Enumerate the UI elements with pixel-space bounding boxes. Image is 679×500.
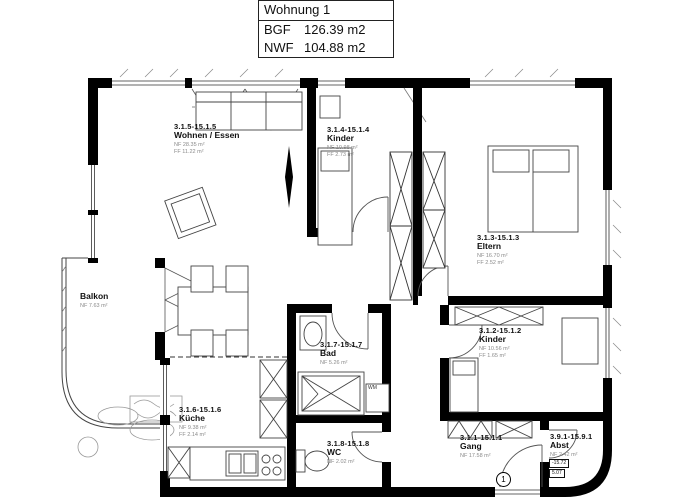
room-nf: NF 16.70 m²	[477, 253, 519, 259]
floorplan-page: Wohnung 1 BGF 126.39 m2 NWF 104.88 m2 3.…	[0, 0, 679, 500]
room-label-kueche: 3.1.6-15.1.6 Küche NF 9.38 m² FF 2.14 m²	[179, 406, 221, 438]
level-marker-lower: 5.07	[549, 469, 565, 478]
nwf-row: NWF 104.88 m2	[259, 39, 393, 57]
room-nf: NF 10.56 m²	[479, 346, 521, 352]
furniture-kinder2	[450, 307, 598, 412]
furniture-wc	[296, 450, 329, 472]
window-right-kinder2	[603, 308, 612, 378]
room-name: Abst	[550, 441, 592, 451]
room-label-abst: 3.9.1-15.9.1 Abst NF 2.42 m²	[550, 433, 592, 458]
window-top-kinder	[318, 78, 345, 88]
nwf-label: NWF	[264, 40, 304, 56]
room-label-kinder2: 3.1.2-15.1.2 Kinder NF 10.56 m² FF 1.65 …	[479, 327, 521, 359]
bgf-value: 126.39 m2	[304, 22, 365, 38]
title-block: Wohnung 1 BGF 126.39 m2 NWF 104.88 m2	[258, 0, 394, 58]
balcony-railing-hatch	[62, 266, 66, 352]
room-nf: NF 17.58 m²	[460, 453, 502, 459]
room-nf: NF 5.26 m²	[320, 360, 362, 366]
room-nf: NF 9.38 m²	[179, 425, 221, 431]
room-name: Küche	[179, 414, 221, 424]
entrance-opening	[495, 487, 542, 497]
room-ff: FF 2.14 m²	[179, 432, 221, 438]
room-name: Bad	[320, 349, 362, 359]
bgf-label: BGF	[264, 22, 304, 38]
section-arrow	[285, 146, 293, 208]
apartment-title: Wohnung 1	[259, 1, 393, 21]
room-nf: NF 10.98 m²	[327, 145, 369, 151]
bgf-row: BGF 126.39 m2	[259, 21, 393, 39]
balcony-outline	[62, 258, 160, 428]
room-name: Wohnen / Essen	[174, 131, 240, 141]
window-top-left	[112, 78, 185, 88]
room-ff: FF 11.22 m²	[174, 149, 240, 155]
floorplan-drawing	[0, 0, 679, 500]
room-nf: NF 2.42 m²	[550, 452, 592, 458]
level-marker-upper: -15.72	[549, 459, 569, 468]
dining-table	[178, 287, 248, 335]
washing-machine-label: WM	[368, 385, 377, 391]
room-label-eltern: 3.1.3-15.1.3 Eltern NF 16.70 m² FF 2.52 …	[477, 234, 519, 266]
armchair	[165, 187, 216, 238]
room-nf: NF 2.02 m²	[327, 459, 369, 465]
room-nf: NF 7.63 m²	[80, 303, 108, 309]
room-name: Eltern	[477, 242, 519, 252]
window-top-living	[192, 78, 300, 88]
room-label-wohnen: 3.1.5-15.1.5 Wohnen / Essen NF 28.35 m² …	[174, 123, 240, 155]
room-name: Kinder	[479, 335, 521, 345]
nwf-value: 104.88 m2	[304, 40, 365, 56]
room-label-wc: 3.1.8-15.1.8 WC NF 2.02 m²	[327, 440, 369, 465]
room-nf: NF 28.35 m²	[174, 142, 240, 148]
room-label-bad: 3.1.7-15.1.7 Bad NF 5.26 m²	[320, 341, 362, 366]
window-right-eltern	[603, 190, 612, 265]
window-top-eltern	[470, 78, 575, 88]
room-name: Balkon	[80, 292, 108, 302]
room-name: WC	[327, 448, 369, 458]
room-label-kinder1: 3.1.4-15.1.4 Kinder NF 10.98 m² FF 2.73 …	[327, 126, 369, 158]
room-label-gang: 3.1.1-15.1.1 Gang NF 17.58 m²	[460, 434, 502, 459]
room-ff: FF 2.73 m²	[327, 152, 369, 158]
room-name: Kinder	[327, 134, 369, 144]
room-name: Gang	[460, 442, 502, 452]
room-label-balkon: Balkon NF 7.63 m²	[80, 292, 108, 309]
room-ff: FF 1.65 m²	[479, 353, 521, 359]
entrance-door-number: 1	[496, 472, 511, 487]
furniture-eltern	[488, 146, 578, 232]
room-ff: FF 2.52 m²	[477, 260, 519, 266]
furniture-kinder1	[318, 96, 352, 245]
